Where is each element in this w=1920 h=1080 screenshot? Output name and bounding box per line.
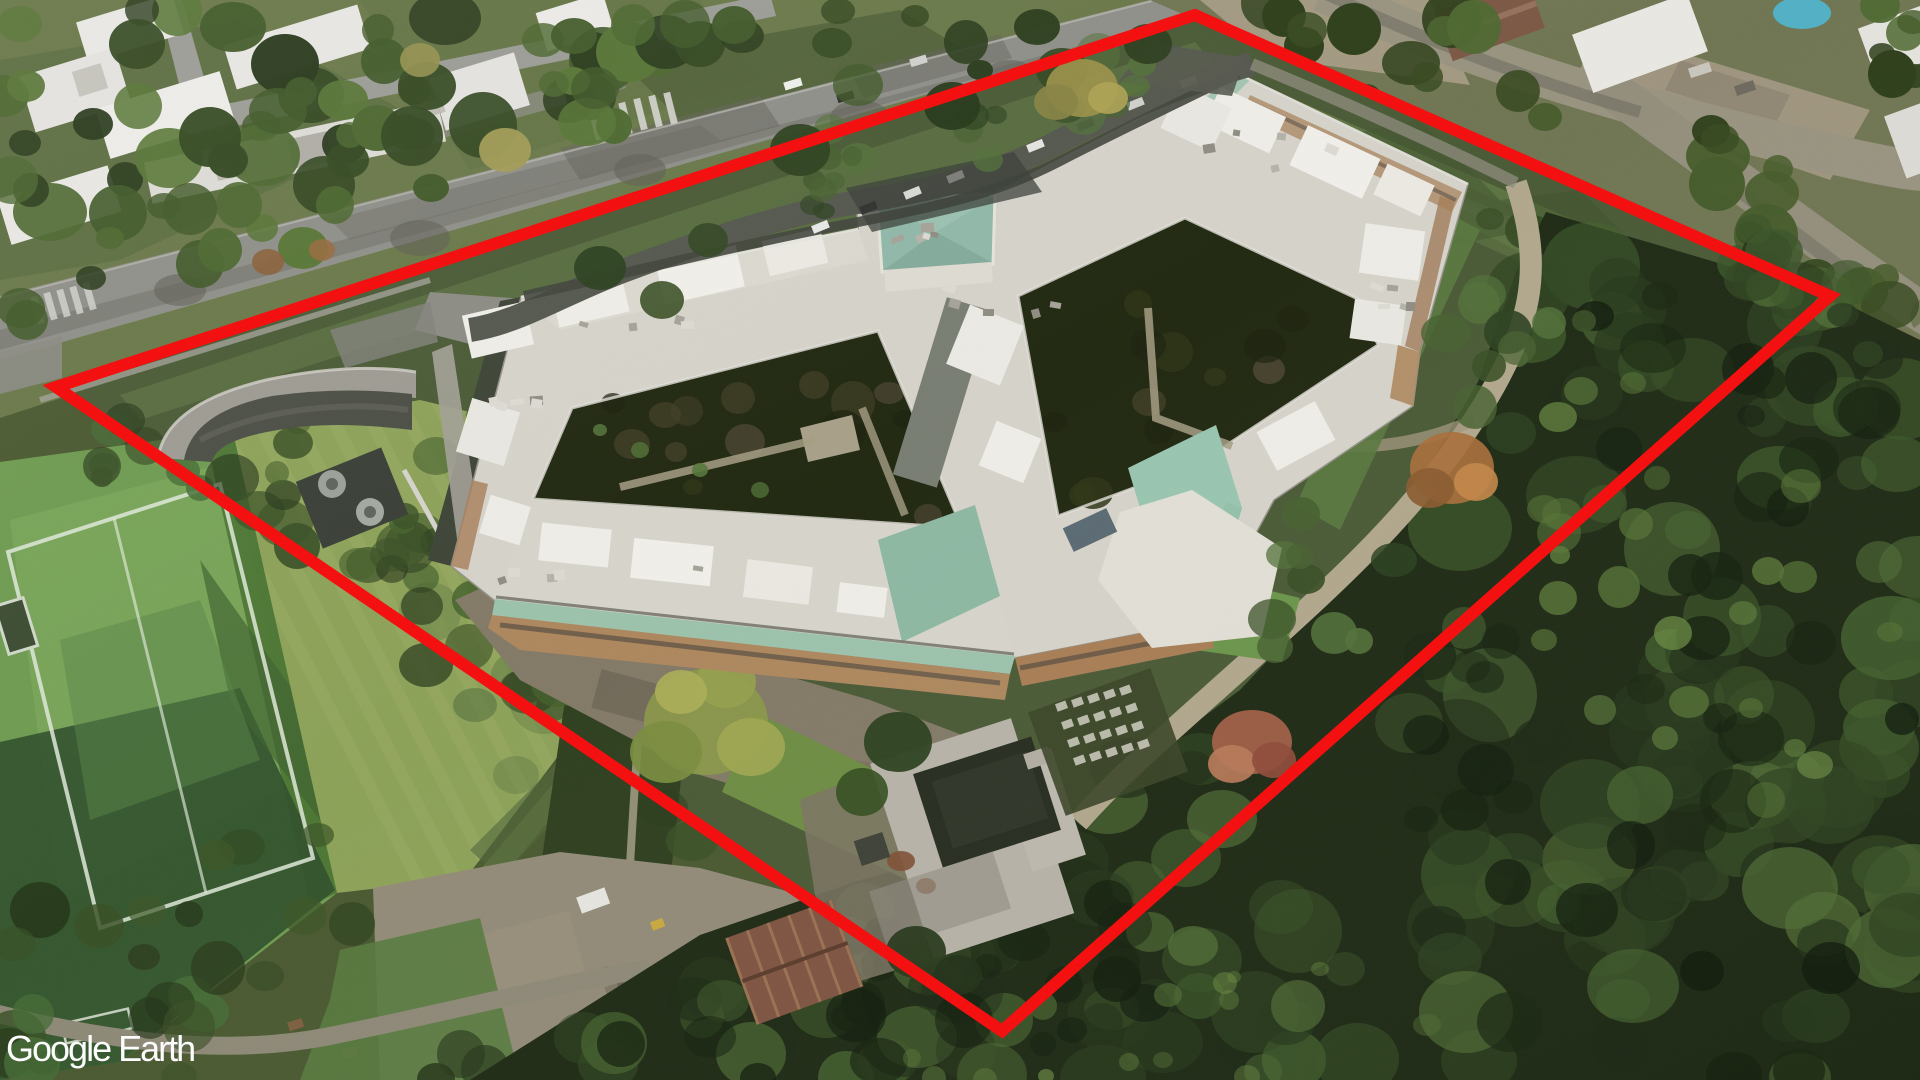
svg-text:Google Earth: Google Earth [6, 1028, 194, 1069]
